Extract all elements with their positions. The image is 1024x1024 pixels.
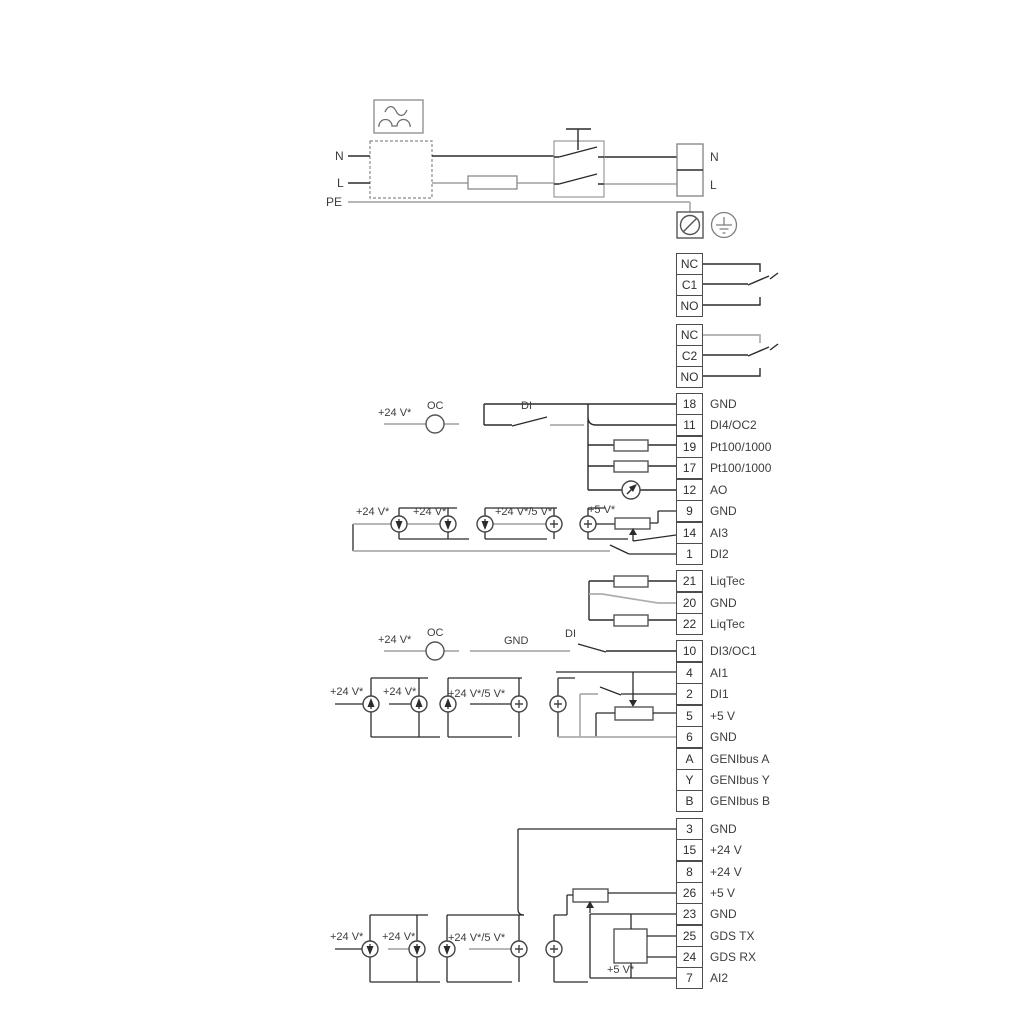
- ai1-source-row: [335, 672, 676, 737]
- potentiometer-ai2: [573, 889, 608, 902]
- pt100-sensors: [588, 440, 676, 472]
- fuse: [468, 176, 517, 189]
- wiring-diagram-page: N L PE N L NC C1 NO NC C2 NO 18GND 11DI4…: [0, 0, 1024, 1024]
- mains-wires: [348, 156, 690, 212]
- ac-source-icon: [374, 100, 423, 133]
- potentiometer-ai3: [615, 518, 650, 529]
- liqtec-wiring: [589, 576, 676, 626]
- earth-icon: [712, 213, 737, 238]
- pt100-resistor-2: [614, 461, 648, 472]
- ai2-source-row: [335, 829, 676, 982]
- gds-sensor-box: [614, 929, 647, 963]
- open-collector-icon: [426, 642, 444, 660]
- analog-output-meter: [588, 481, 676, 499]
- pt100-resistor-1: [614, 440, 648, 451]
- ai3-source-row: [353, 508, 676, 554]
- mains-terminal-block: [677, 144, 703, 196]
- screw-terminal-icon: [677, 212, 703, 238]
- main-switch: [554, 129, 604, 197]
- di3-row-wiring: [384, 642, 676, 660]
- liqtec-resistor-2: [614, 615, 648, 626]
- wiring-diagram-graphics: [0, 0, 1024, 1024]
- relay1-contacts: [703, 264, 778, 305]
- open-collector-icon: [426, 415, 444, 433]
- potentiometer-ai1: [615, 707, 653, 720]
- relay2-contacts: [703, 335, 778, 376]
- emc-filter-box: [370, 141, 432, 198]
- liqtec-resistor-1: [614, 576, 648, 587]
